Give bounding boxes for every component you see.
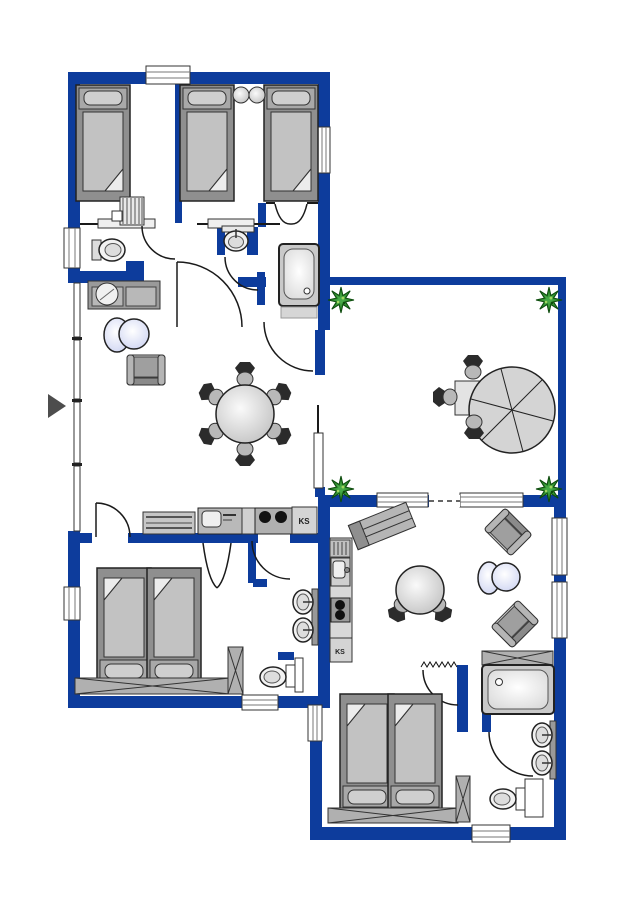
window-right-unit-right-2 <box>552 582 567 638</box>
window-left-lower <box>64 587 80 620</box>
wardrobe <box>228 647 243 694</box>
parasol <box>469 367 555 453</box>
living-room <box>88 281 294 466</box>
fridge: KS <box>292 507 317 534</box>
round-table <box>396 566 444 614</box>
wardrobe <box>456 776 470 822</box>
floorplan-svg: KS <box>0 0 640 906</box>
dining-group-right <box>385 566 455 625</box>
kitchen-left: KS <box>143 507 317 534</box>
window-right-unit-right-1 <box>552 518 567 575</box>
fridge-label-right: KS <box>335 649 345 656</box>
dishwasher-icon <box>143 512 195 534</box>
wardrobe <box>75 678 230 694</box>
double-washbasin-icon <box>293 589 318 645</box>
dining-table <box>216 385 274 443</box>
stove-icon <box>331 598 350 622</box>
toilet-icon <box>490 788 525 810</box>
sink-icon <box>198 508 242 534</box>
armchair <box>127 355 165 385</box>
window-top <box>146 66 190 84</box>
sofa <box>88 281 160 309</box>
double-bed-half <box>388 694 442 810</box>
terrace <box>328 287 562 502</box>
single-bed <box>180 85 234 201</box>
wardrobe <box>328 808 458 823</box>
single-bed <box>264 85 318 201</box>
kitchen-right: KS <box>330 538 352 662</box>
double-washbasin-icon <box>532 721 556 779</box>
window-right-top <box>318 127 330 173</box>
top-bedrooms <box>76 85 318 225</box>
armchair <box>491 600 539 648</box>
bath-bottom-left <box>260 589 318 692</box>
terrace-glass-door <box>314 405 323 488</box>
window-right-unit-bottom <box>472 825 510 842</box>
terrace-chair <box>463 355 483 379</box>
wc-top <box>92 239 125 261</box>
stove-icon <box>255 508 292 534</box>
living-room-door <box>177 262 242 327</box>
single-bed <box>76 85 130 201</box>
partition <box>295 658 303 692</box>
bathtub-icon <box>279 244 319 306</box>
coffee-table <box>478 562 520 594</box>
terrace-chair <box>433 387 457 407</box>
window-right-unit-left <box>308 705 322 741</box>
curtain-zigzag <box>421 662 457 667</box>
stool <box>233 87 249 103</box>
fridge-label-left: KS <box>298 517 310 526</box>
glass-front <box>72 283 82 531</box>
bath-mat <box>281 307 317 318</box>
plant-icon <box>328 287 354 313</box>
dining-group <box>196 362 294 466</box>
plant-icon <box>536 476 562 502</box>
partition <box>525 779 543 817</box>
window-wc <box>64 228 80 268</box>
plant-icon <box>328 476 354 502</box>
fridge: KS <box>330 638 352 662</box>
sink-icon <box>331 558 350 586</box>
double-bed-half <box>97 568 151 684</box>
bath-top <box>222 226 319 318</box>
appliance-icon <box>330 540 350 557</box>
double-bed-half <box>340 694 394 810</box>
double-bed-half <box>147 568 201 684</box>
window-right-unit-top-2 <box>460 493 523 507</box>
sideboard <box>348 502 415 549</box>
floorplan-canvas: KS <box>0 0 640 906</box>
plant-icon <box>536 287 562 313</box>
bedroom-door <box>96 503 130 537</box>
bathtub-icon <box>482 665 554 714</box>
window-bottom-left-unit <box>242 695 278 710</box>
wardrobe <box>482 651 553 665</box>
terrace-entry-dashed <box>429 495 460 507</box>
stool <box>249 87 265 103</box>
entrance-arrow-icon <box>48 394 66 418</box>
toilet-icon <box>260 665 295 687</box>
armchair <box>484 508 532 556</box>
counter <box>242 508 255 534</box>
coffee-table <box>104 318 149 352</box>
